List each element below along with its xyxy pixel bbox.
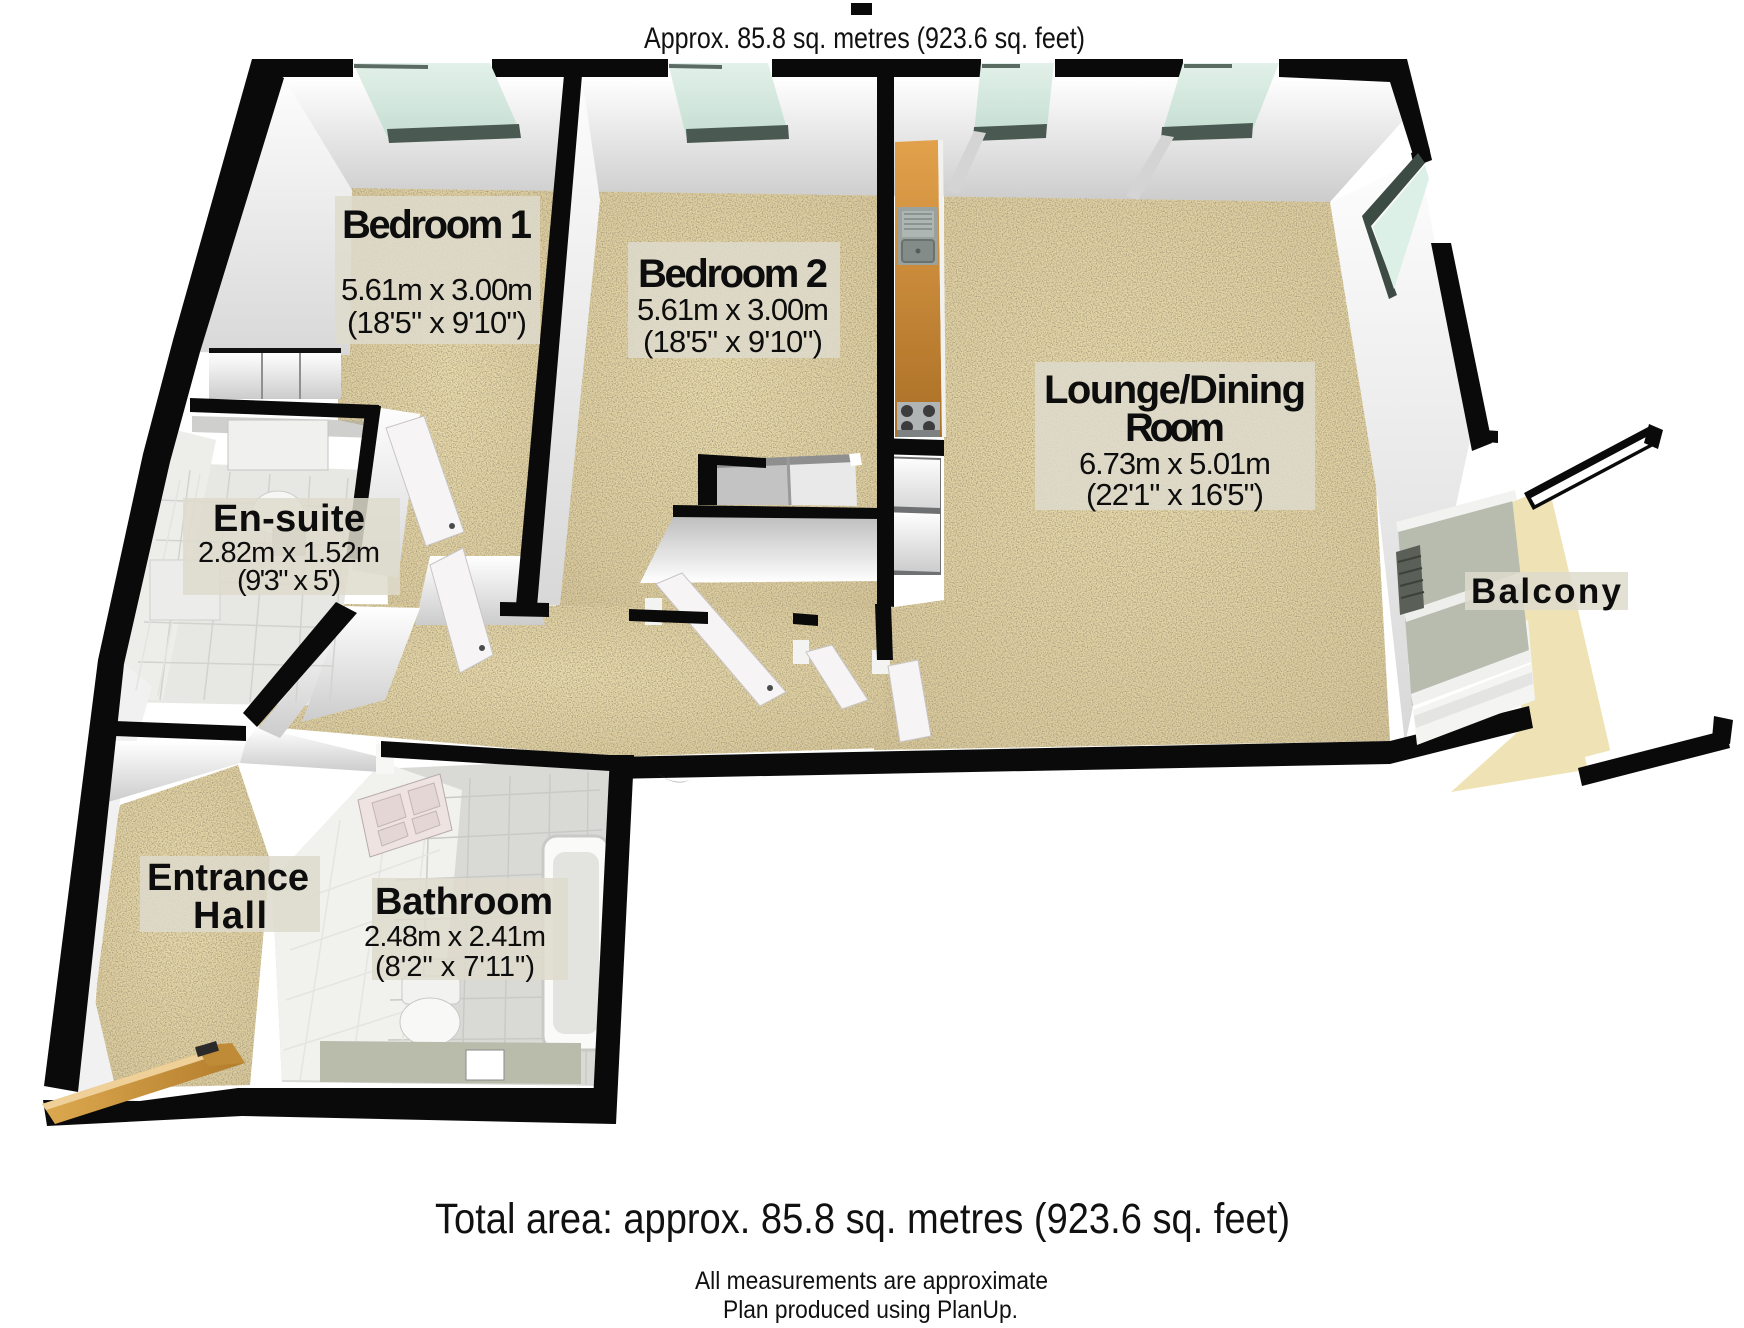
svg-text:Bedroom 1: Bedroom 1 [342, 203, 532, 247]
svg-text:Total area: approx. 85.8 sq. m: Total area: approx. 85.8 sq. metres (923… [435, 1195, 1290, 1243]
svg-text:5.61m x 3.00m: 5.61m x 3.00m [637, 292, 829, 327]
svg-text:En-suite: En-suite [213, 498, 365, 540]
svg-text:(22'1" x 16'5"): (22'1" x 16'5") [1086, 477, 1264, 512]
svg-text:Bathroom: Bathroom [375, 881, 553, 923]
svg-text:Hall: Hall [193, 895, 267, 937]
svg-text:(18'5" x 9'10"): (18'5" x 9'10") [643, 324, 823, 359]
svg-text:(18'5" x 9'10"): (18'5" x 9'10") [347, 305, 527, 340]
svg-text:Room: Room [1125, 406, 1225, 450]
svg-text:5.61m x 3.00m: 5.61m x 3.00m [341, 272, 533, 307]
svg-text:All measurements are approxima: All measurements are approximate [695, 1267, 1048, 1295]
svg-text:Plan produced using PlanUp.: Plan produced using PlanUp. [723, 1296, 1018, 1324]
svg-text:Bedroom 2: Bedroom 2 [638, 252, 828, 296]
svg-text:Balcony: Balcony [1471, 572, 1622, 611]
svg-text:2.48m x 2.41m: 2.48m x 2.41m [364, 921, 546, 953]
svg-text:(8'2" x 7'11"): (8'2" x 7'11") [375, 951, 535, 983]
svg-text:Approx. 85.8 sq. metres (923.6: Approx. 85.8 sq. metres (923.6 sq. feet) [644, 22, 1085, 55]
svg-text:(9'3" x 5'): (9'3" x 5') [237, 565, 341, 597]
svg-text:6.73m x 5.01m: 6.73m x 5.01m [1079, 446, 1271, 481]
svg-text:Entrance: Entrance [147, 857, 309, 899]
